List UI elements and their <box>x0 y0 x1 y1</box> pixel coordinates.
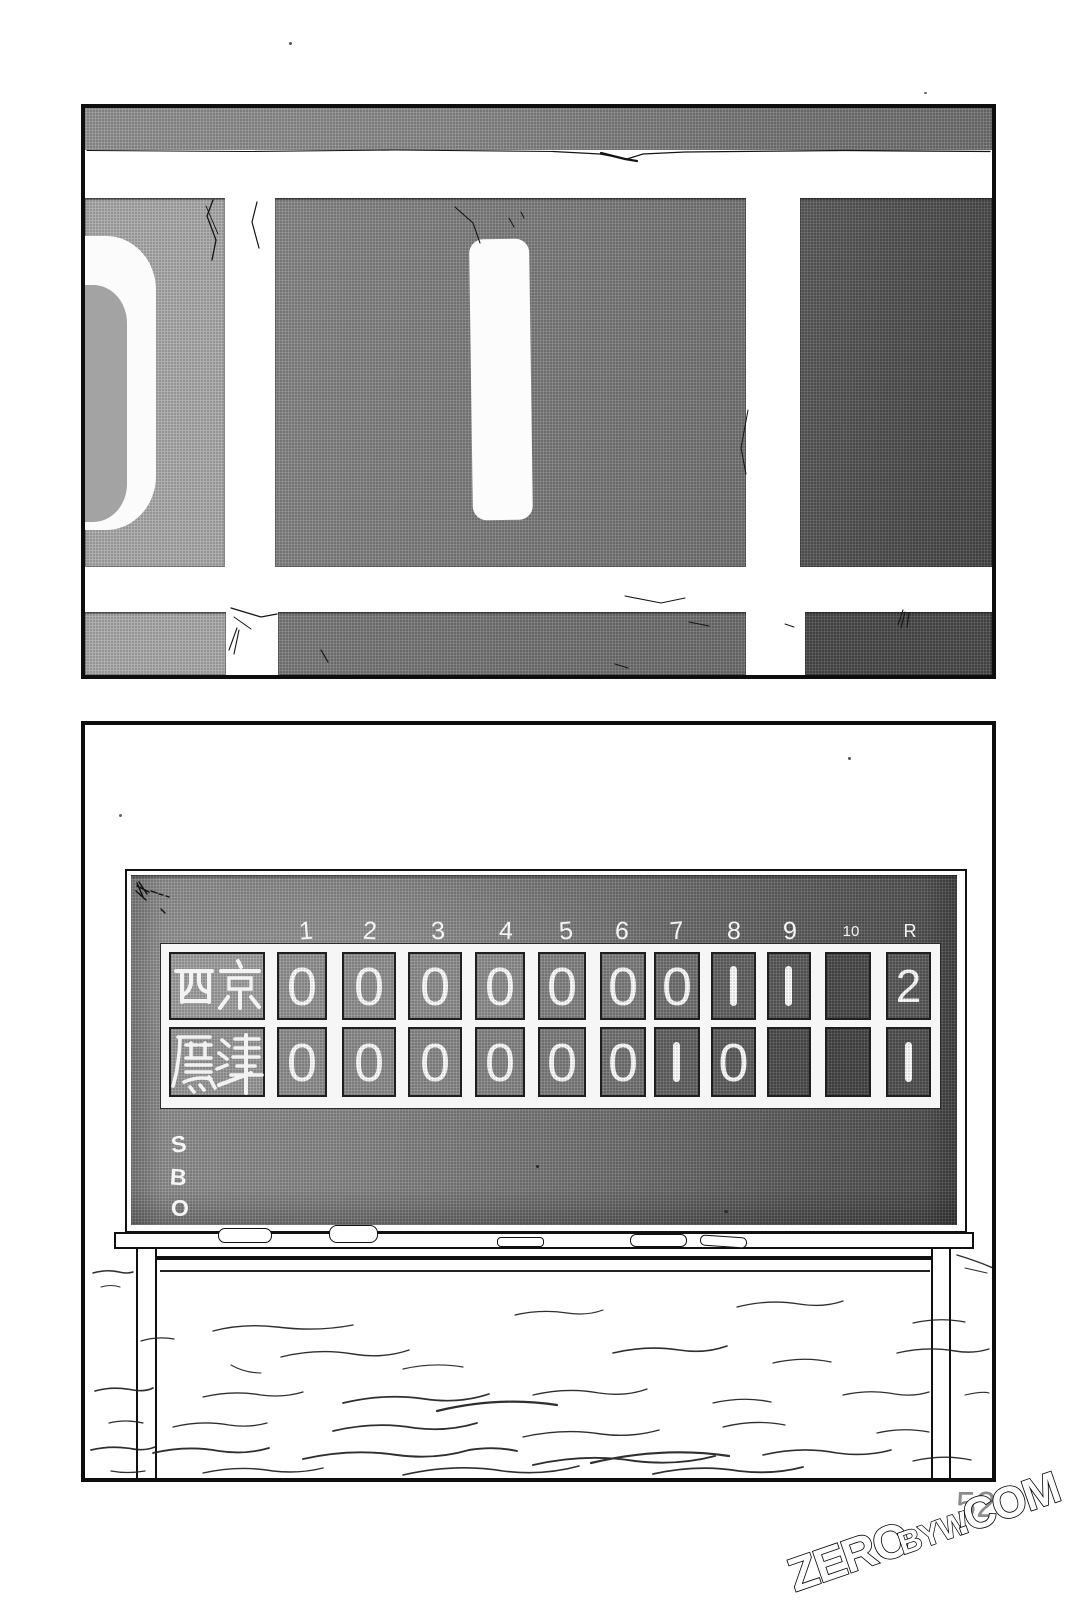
svg-text:.COM: .COM <box>947 1463 1066 1545</box>
svg-text:ZERO: ZERO <box>781 1511 915 1600</box>
